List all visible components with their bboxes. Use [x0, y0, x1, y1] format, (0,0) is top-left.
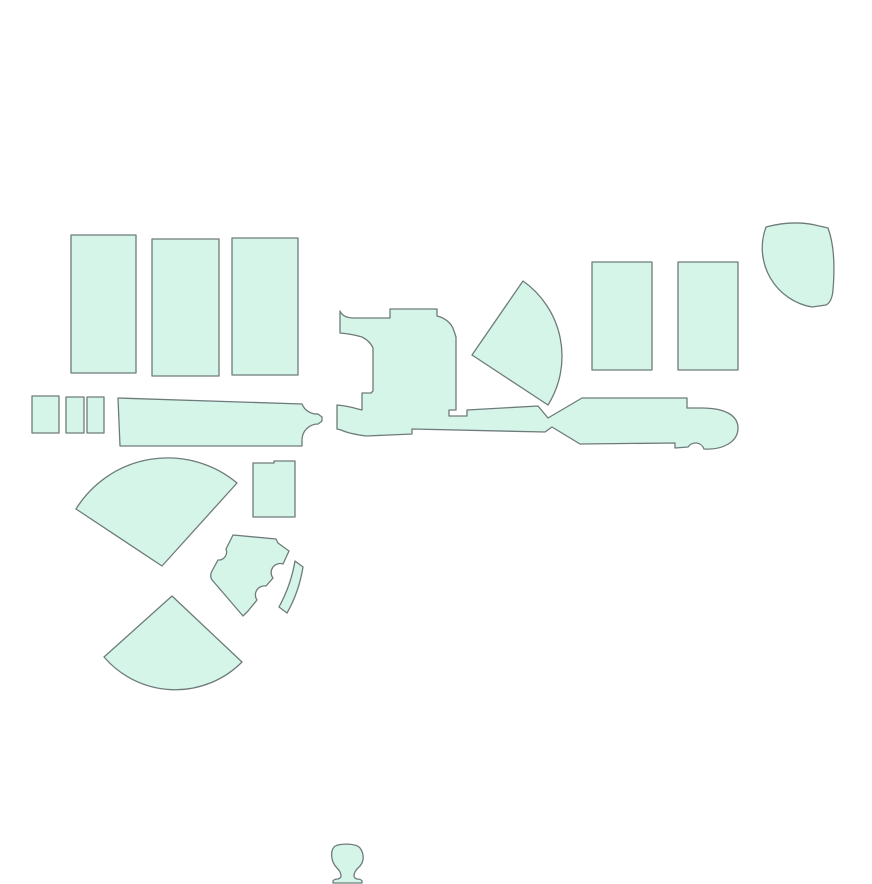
- fan-west-upper: [76, 458, 237, 566]
- notched-polygon: [211, 535, 289, 616]
- curved-strip: [279, 561, 303, 613]
- small-block-west-1: [32, 396, 59, 433]
- small-figure-south: [332, 844, 364, 883]
- map-viewport: [0, 0, 872, 884]
- block-northwest-3: [232, 238, 298, 375]
- small-block-center: [253, 461, 295, 517]
- round-block-northeast: [762, 223, 834, 307]
- map-canvas[interactable]: [0, 0, 872, 884]
- fan-center: [472, 281, 562, 405]
- block-northwest-2: [152, 239, 219, 376]
- block-northeast-2: [678, 262, 738, 370]
- block-northwest-1: [71, 235, 136, 373]
- block-northeast-1: [592, 262, 652, 370]
- fan-west-lower: [104, 596, 242, 690]
- long-bar-west: [118, 398, 322, 446]
- small-block-west-2: [66, 397, 84, 433]
- building-footprints: [32, 223, 834, 883]
- small-block-west-3: [87, 397, 104, 433]
